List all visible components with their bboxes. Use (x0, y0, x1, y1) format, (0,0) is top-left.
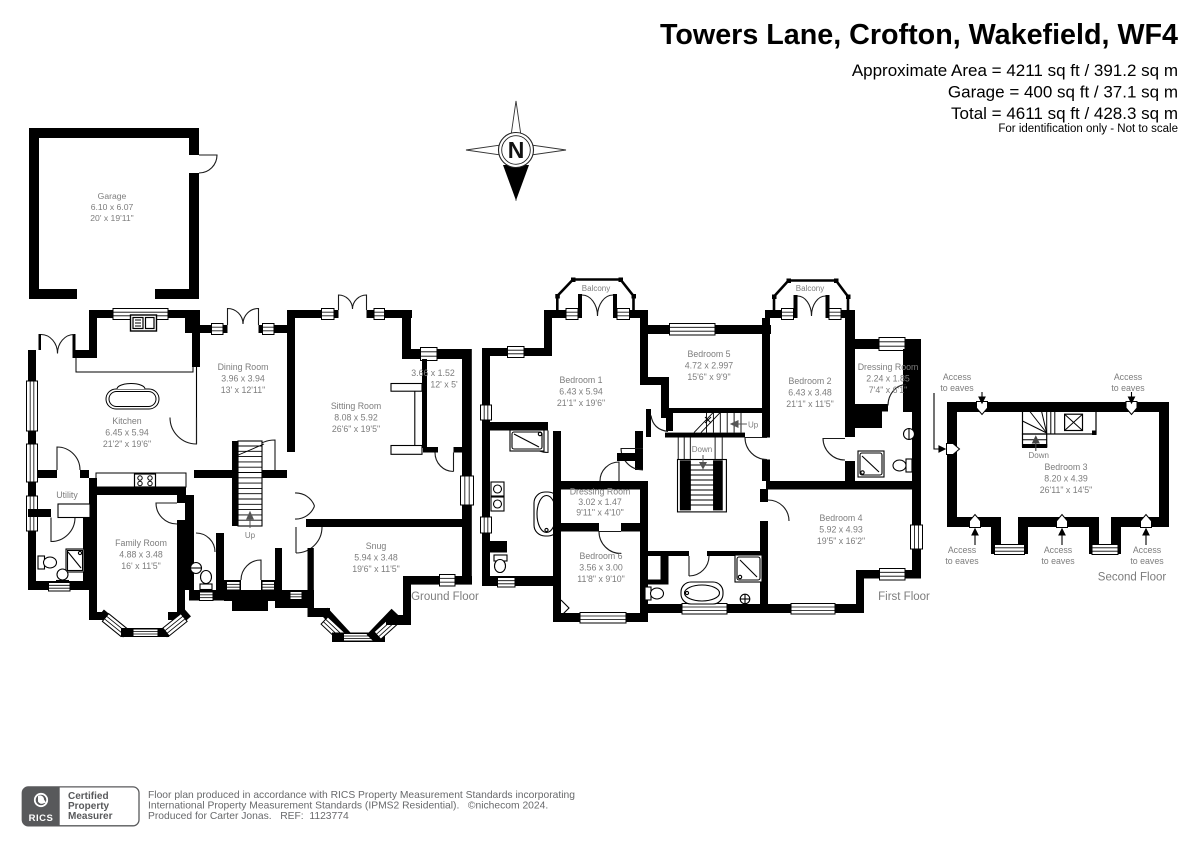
svg-text:Access: Access (1114, 372, 1143, 382)
svg-text:21'1" x 11'5": 21'1" x 11'5" (786, 399, 834, 409)
svg-text:8.08 x 5.92: 8.08 x 5.92 (334, 413, 378, 423)
svg-text:11'8" x 9'10": 11'8" x 9'10" (577, 574, 625, 584)
svg-text:Kitchen: Kitchen (112, 416, 141, 426)
svg-text:6.45 x 5.94: 6.45 x 5.94 (105, 428, 149, 438)
svg-text:4.72 x 2.997: 4.72 x 2.997 (685, 361, 734, 371)
svg-text:6.43 x 5.94: 6.43 x 5.94 (559, 387, 603, 397)
svg-text:Approximate Area = 4211 sq ft: Approximate Area = 4211 sq ft / 391.2 sq… (852, 61, 1178, 80)
svg-text:19'5" x 16'2": 19'5" x 16'2" (817, 536, 865, 546)
svg-text:2.24 x 1.85: 2.24 x 1.85 (866, 374, 910, 384)
svg-text:RICS: RICS (29, 813, 54, 824)
svg-text:Garage: Garage (98, 191, 127, 201)
svg-text:Access: Access (943, 372, 972, 382)
svg-text:Utility: Utility (56, 490, 78, 500)
svg-text:6.10 x 6.07: 6.10 x 6.07 (91, 202, 134, 212)
svg-text:Bedroom 2: Bedroom 2 (788, 376, 831, 386)
svg-text:Access: Access (1133, 545, 1162, 555)
svg-text:26'6" x 19'5": 26'6" x 19'5" (332, 424, 380, 434)
svg-text:Towers Lane, Crofton, Wakefiel: Towers Lane, Crofton, Wakefield, WF4 (660, 19, 1178, 51)
svg-text:to eaves: to eaves (940, 383, 974, 393)
svg-text:19'6" x 11'5": 19'6" x 11'5" (352, 564, 400, 574)
svg-text:Bedroom 6: Bedroom 6 (579, 551, 622, 561)
svg-text:N: N (508, 137, 525, 163)
svg-text:3.96 x 3.94: 3.96 x 3.94 (221, 374, 265, 384)
svg-text:to eaves: to eaves (1111, 383, 1145, 393)
svg-text:15'6" x 9'9": 15'6" x 9'9" (687, 372, 730, 382)
svg-text:3.02 x 1.47: 3.02 x 1.47 (578, 497, 622, 507)
svg-text:Dining Room: Dining Room (218, 362, 269, 372)
svg-text:6.43 x 3.48: 6.43 x 3.48 (788, 388, 832, 398)
svg-text:7'4" x 6'1": 7'4" x 6'1" (869, 385, 907, 395)
svg-text:3.66 x 1.52: 3.66 x 1.52 (411, 368, 455, 378)
svg-text:12' x 5': 12' x 5' (430, 380, 458, 390)
svg-text:3.56 x 3.00: 3.56 x 3.00 (579, 563, 623, 573)
svg-text:to eaves: to eaves (1130, 556, 1164, 566)
svg-text:Ground Floor: Ground Floor (411, 591, 479, 603)
svg-text:Bedroom 4: Bedroom 4 (819, 513, 862, 523)
svg-text:Bedroom 5: Bedroom 5 (687, 349, 730, 359)
svg-text:For identification only - Not: For identification only - Not to scale (998, 123, 1178, 135)
svg-text:to eaves: to eaves (945, 556, 979, 566)
svg-text:Total = 4611 sq ft / 428.3 sq: Total = 4611 sq ft / 428.3 sq m (951, 104, 1178, 123)
svg-text:Balcony: Balcony (796, 284, 824, 293)
svg-text:Sitting Room: Sitting Room (331, 401, 381, 411)
svg-text:Up: Up (245, 531, 256, 540)
svg-text:21'1" x 19'6": 21'1" x 19'6" (557, 398, 605, 408)
svg-text:9'11" x 4'10": 9'11" x 4'10" (576, 508, 624, 518)
svg-text:Family Room: Family Room (115, 538, 167, 548)
svg-text:Down: Down (1028, 451, 1048, 460)
svg-text:Floor plan produced in accorda: Floor plan produced in accordance with R… (148, 790, 575, 801)
svg-text:Dressing Room: Dressing Room (570, 487, 631, 497)
svg-text:Dressing Room: Dressing Room (858, 362, 919, 372)
svg-text:5.92 x 4.93: 5.92 x 4.93 (819, 525, 863, 535)
svg-text:Down: Down (692, 445, 712, 454)
svg-text:Balcony: Balcony (582, 284, 610, 293)
svg-text:Up: Up (748, 421, 759, 430)
svg-text:Second Floor: Second Floor (1098, 572, 1167, 584)
svg-text:to eaves: to eaves (1041, 556, 1075, 566)
svg-text:Bedroom 3: Bedroom 3 (1044, 462, 1087, 472)
svg-text:Measurer: Measurer (68, 811, 113, 822)
svg-text:21'2" x 19'6": 21'2" x 19'6" (103, 439, 151, 449)
svg-text:26'11" x 14'5": 26'11" x 14'5" (1040, 485, 1093, 495)
svg-text:Access: Access (1044, 545, 1073, 555)
svg-text:Snug: Snug (366, 541, 387, 551)
svg-text:International Property Measure: International Property Measurement Stand… (148, 801, 548, 812)
svg-text:8.20 x 4.39: 8.20 x 4.39 (1044, 474, 1088, 484)
svg-text:4.88 x 3.48: 4.88 x 3.48 (119, 550, 163, 560)
svg-text:16' x 11'5": 16' x 11'5" (121, 561, 161, 571)
svg-text:Bedroom 1: Bedroom 1 (559, 375, 602, 385)
svg-text:5.94 x 3.48: 5.94 x 3.48 (354, 553, 398, 563)
svg-text:Garage = 400 sq ft / 37.1 sq m: Garage = 400 sq ft / 37.1 sq m (948, 83, 1178, 102)
svg-text:First Floor: First Floor (878, 591, 930, 603)
svg-text:13' x 12'11": 13' x 12'11" (221, 385, 265, 395)
svg-text:Access: Access (948, 545, 977, 555)
svg-text:Produced for Carter Jonas. R: Produced for Carter Jonas. REF: 1123774 (148, 811, 349, 822)
svg-text:20' x 19'11": 20' x 19'11" (90, 213, 133, 223)
